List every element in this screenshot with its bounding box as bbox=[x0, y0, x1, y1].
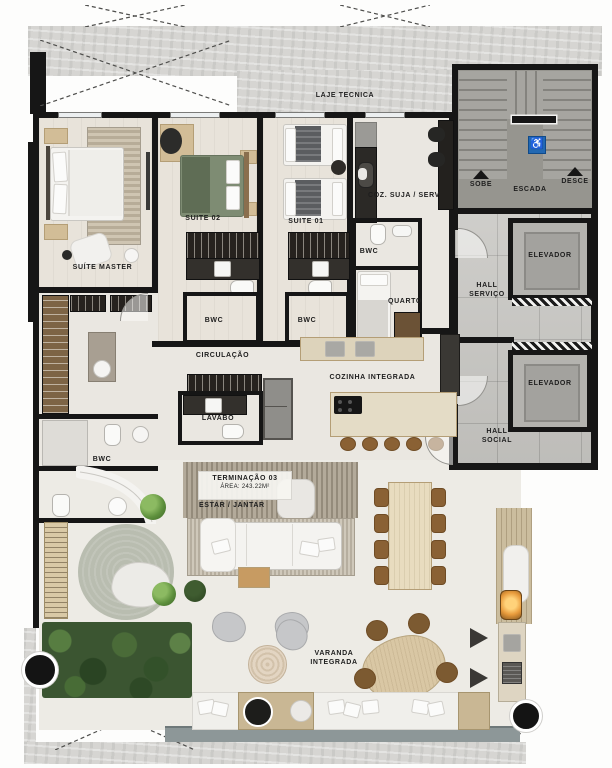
pillow bbox=[361, 699, 379, 715]
concrete-band-left-bottom bbox=[24, 628, 36, 750]
sofa-seam bbox=[292, 524, 293, 566]
elevator-door-hatch bbox=[512, 298, 592, 306]
window bbox=[170, 112, 220, 118]
basin bbox=[358, 168, 367, 180]
lamp bbox=[500, 590, 522, 620]
side-table bbox=[290, 700, 312, 722]
dining-chair bbox=[374, 488, 389, 507]
bar-stool bbox=[406, 437, 422, 451]
hall-right-wall bbox=[591, 208, 598, 470]
pillow bbox=[226, 160, 240, 184]
sink bbox=[392, 225, 412, 237]
master-bottom-wall bbox=[33, 287, 158, 293]
pillow bbox=[360, 274, 388, 286]
headboard bbox=[244, 152, 249, 218]
room-label-hall-servico: HALL SERVIÇO bbox=[458, 282, 516, 300]
room-label-suite-master: SUÍTE MASTER bbox=[55, 264, 150, 273]
dining-chair bbox=[374, 566, 389, 585]
balcony-chair bbox=[408, 613, 430, 634]
desk-chair bbox=[160, 128, 182, 154]
room-label-laje-tecnica: LAJE TECNICA bbox=[285, 92, 405, 101]
room-label-coz-suja: COZ. SUJA / SERV bbox=[358, 192, 450, 201]
wardrobe bbox=[186, 232, 260, 259]
column bbox=[510, 700, 542, 732]
slat-bench bbox=[44, 522, 68, 619]
plant bbox=[152, 582, 176, 606]
room-label-suite-02: SUITE 02 bbox=[172, 215, 234, 224]
round-sink bbox=[132, 426, 149, 443]
room-label-varanda: VARANDA INTEGRADA bbox=[300, 650, 368, 668]
burner bbox=[338, 408, 342, 412]
bar-stool bbox=[340, 437, 356, 451]
garden-bed bbox=[42, 622, 192, 698]
pillow bbox=[332, 182, 343, 216]
stair-flight-left bbox=[459, 71, 507, 179]
grill bbox=[502, 662, 522, 684]
coffee-table bbox=[238, 567, 270, 588]
wall-tv bbox=[146, 152, 150, 210]
unit-label: TERMINAÇÃO 03 bbox=[199, 475, 291, 484]
pillow bbox=[317, 537, 336, 552]
room-label-bwc-servico: BWC bbox=[352, 248, 386, 257]
pillow bbox=[52, 184, 68, 215]
bar-stool bbox=[362, 437, 378, 451]
plant bbox=[184, 580, 206, 602]
elevator-cab-2 bbox=[524, 364, 580, 422]
blanket bbox=[182, 157, 210, 213]
dining-table bbox=[388, 482, 432, 590]
room-label-bwc-s02: BWC bbox=[192, 317, 236, 326]
stone-table bbox=[248, 645, 287, 684]
nightstand bbox=[44, 224, 68, 240]
void-x bbox=[85, 5, 185, 27]
room-label-bwc-master: BWC bbox=[82, 456, 122, 465]
window bbox=[275, 112, 325, 118]
balcony-chair bbox=[354, 668, 376, 689]
appliance-tower bbox=[263, 378, 293, 440]
blanket bbox=[295, 180, 321, 216]
void-x bbox=[40, 40, 232, 106]
room-label-cozinha: COZINHA INTEGRADA bbox=[310, 374, 435, 383]
chair bbox=[428, 127, 445, 142]
sobe-arrow-icon bbox=[473, 170, 489, 179]
floor-plan: LAJE TECNICA ♿ SOBE ESCADA DESCE ELEVADO… bbox=[0, 0, 612, 768]
pillow bbox=[211, 700, 230, 717]
window bbox=[365, 112, 405, 118]
dining-chair bbox=[431, 514, 446, 533]
room-label-suite-01: SUITE 01 bbox=[277, 218, 335, 227]
balcony-chair bbox=[436, 662, 458, 683]
side-table bbox=[62, 250, 72, 260]
closet-wardrobe bbox=[42, 295, 69, 414]
room-label-quarto: QUARTO bbox=[384, 298, 426, 307]
appliance-column bbox=[440, 334, 460, 396]
closet-stool bbox=[93, 360, 111, 378]
bench-wood-section bbox=[458, 692, 490, 730]
pillow bbox=[332, 128, 343, 162]
sink bbox=[205, 398, 222, 413]
left-wall bbox=[33, 112, 39, 628]
side-table bbox=[331, 160, 346, 175]
kitchen-sink bbox=[325, 341, 345, 357]
void-x bbox=[340, 5, 430, 27]
room-label-elevador-1: ELEVADOR bbox=[518, 252, 582, 261]
plant bbox=[140, 494, 166, 520]
toilet bbox=[370, 224, 386, 245]
cabinet bbox=[355, 122, 377, 148]
accessible-icon: ♿ bbox=[528, 136, 546, 154]
chair bbox=[428, 152, 445, 167]
folding-chair bbox=[470, 628, 488, 648]
sink bbox=[312, 261, 329, 277]
room-label-hall-social: HALL SOCIAL bbox=[466, 428, 528, 446]
fire-bowl bbox=[243, 697, 273, 727]
stool bbox=[124, 248, 139, 263]
room-label-elevador-2: ELEVADOR bbox=[518, 380, 582, 389]
folding-chair bbox=[470, 668, 488, 688]
nightstand bbox=[44, 128, 66, 142]
stair-label-desce: DESCE bbox=[552, 178, 598, 187]
hall-bottom-wall bbox=[452, 463, 598, 470]
wardrobe bbox=[288, 232, 350, 259]
title-block: TERMINAÇÃO 03 ÁREA: 243.22M² bbox=[198, 471, 292, 500]
stair-flight-right bbox=[543, 71, 591, 179]
divider-master-s02 bbox=[152, 112, 158, 292]
pillow bbox=[226, 186, 240, 210]
balcony-chair bbox=[366, 620, 388, 641]
closet-bwc-wall bbox=[33, 414, 158, 419]
blanket bbox=[295, 126, 321, 162]
dining-chair bbox=[431, 540, 446, 559]
desce-arrow-icon bbox=[567, 167, 583, 176]
living-label: ESTAR / JANTAR bbox=[199, 502, 277, 511]
desk-chair bbox=[108, 497, 127, 516]
window bbox=[58, 112, 102, 118]
toilet bbox=[222, 424, 244, 439]
elevator-door-hatch bbox=[512, 342, 592, 350]
stair-label-escada: ESCADA bbox=[505, 186, 555, 195]
bar-stool bbox=[384, 437, 400, 451]
dining-chair bbox=[374, 540, 389, 559]
sofa-seam bbox=[246, 524, 247, 566]
duvet bbox=[68, 150, 122, 216]
column bbox=[22, 652, 58, 688]
sink bbox=[214, 261, 231, 277]
grill-sink bbox=[503, 634, 521, 652]
stair-flight-top bbox=[507, 71, 543, 119]
room-label-lavabo: LAVABO bbox=[196, 415, 240, 424]
stair-label-sobe: SOBE bbox=[458, 181, 504, 190]
burner bbox=[338, 400, 342, 404]
room-label-bwc-s01: BWC bbox=[287, 317, 327, 326]
burner bbox=[348, 400, 352, 404]
bwc-servico bbox=[352, 218, 422, 270]
elevator-cab-1 bbox=[524, 232, 580, 290]
toilet bbox=[52, 494, 70, 517]
dining-chair bbox=[431, 566, 446, 585]
pillow bbox=[285, 128, 296, 162]
pillow bbox=[285, 182, 296, 216]
dining-chair bbox=[374, 514, 389, 533]
dining-chair bbox=[431, 488, 446, 507]
room-label-circulacao: CIRCULAÇÃO bbox=[180, 352, 265, 361]
kitchen-sink bbox=[355, 341, 375, 357]
stair-rail bbox=[512, 116, 556, 123]
closet-wardrobe bbox=[70, 295, 106, 312]
burner bbox=[348, 408, 352, 412]
toilet bbox=[104, 424, 121, 446]
pillow bbox=[52, 152, 68, 183]
area-label: ÁREA: 243.22M² bbox=[199, 484, 291, 492]
hall-divider-wall bbox=[452, 337, 514, 343]
appliance-divider bbox=[265, 406, 287, 407]
